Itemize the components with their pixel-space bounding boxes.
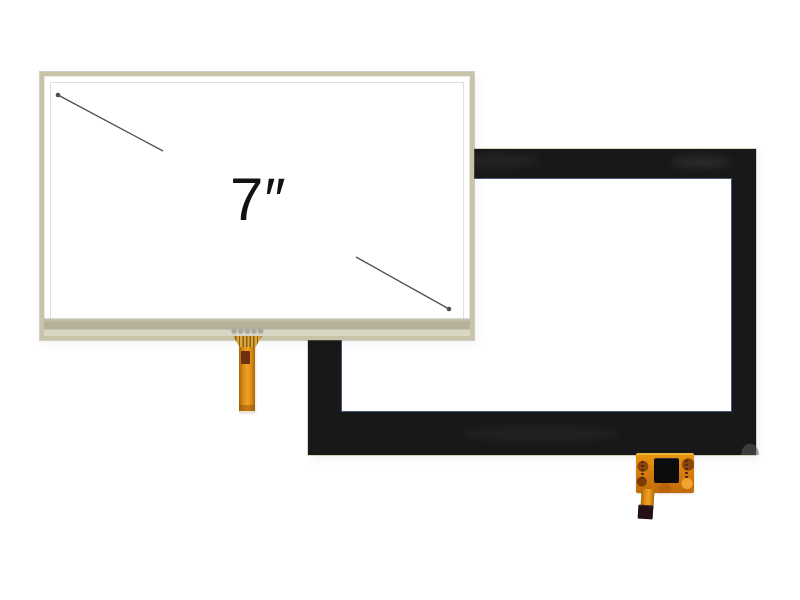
flex-marking	[685, 460, 688, 480]
flex-ribbon	[239, 347, 255, 413]
flex-circuit	[636, 453, 694, 493]
bezel-notch	[739, 441, 761, 455]
flex-ribbon-patch	[241, 351, 250, 364]
bezel-reflection	[461, 426, 621, 442]
product-photo: 7″	[0, 0, 800, 600]
touch-controller-chip	[654, 458, 679, 483]
connector-pins	[231, 325, 264, 337]
flex-marking	[641, 461, 644, 479]
flex-ribbon-tip	[239, 405, 255, 413]
flex-connector-tip	[638, 505, 654, 520]
bezel-reflection	[671, 156, 731, 168]
size-label: 7″	[230, 170, 287, 230]
